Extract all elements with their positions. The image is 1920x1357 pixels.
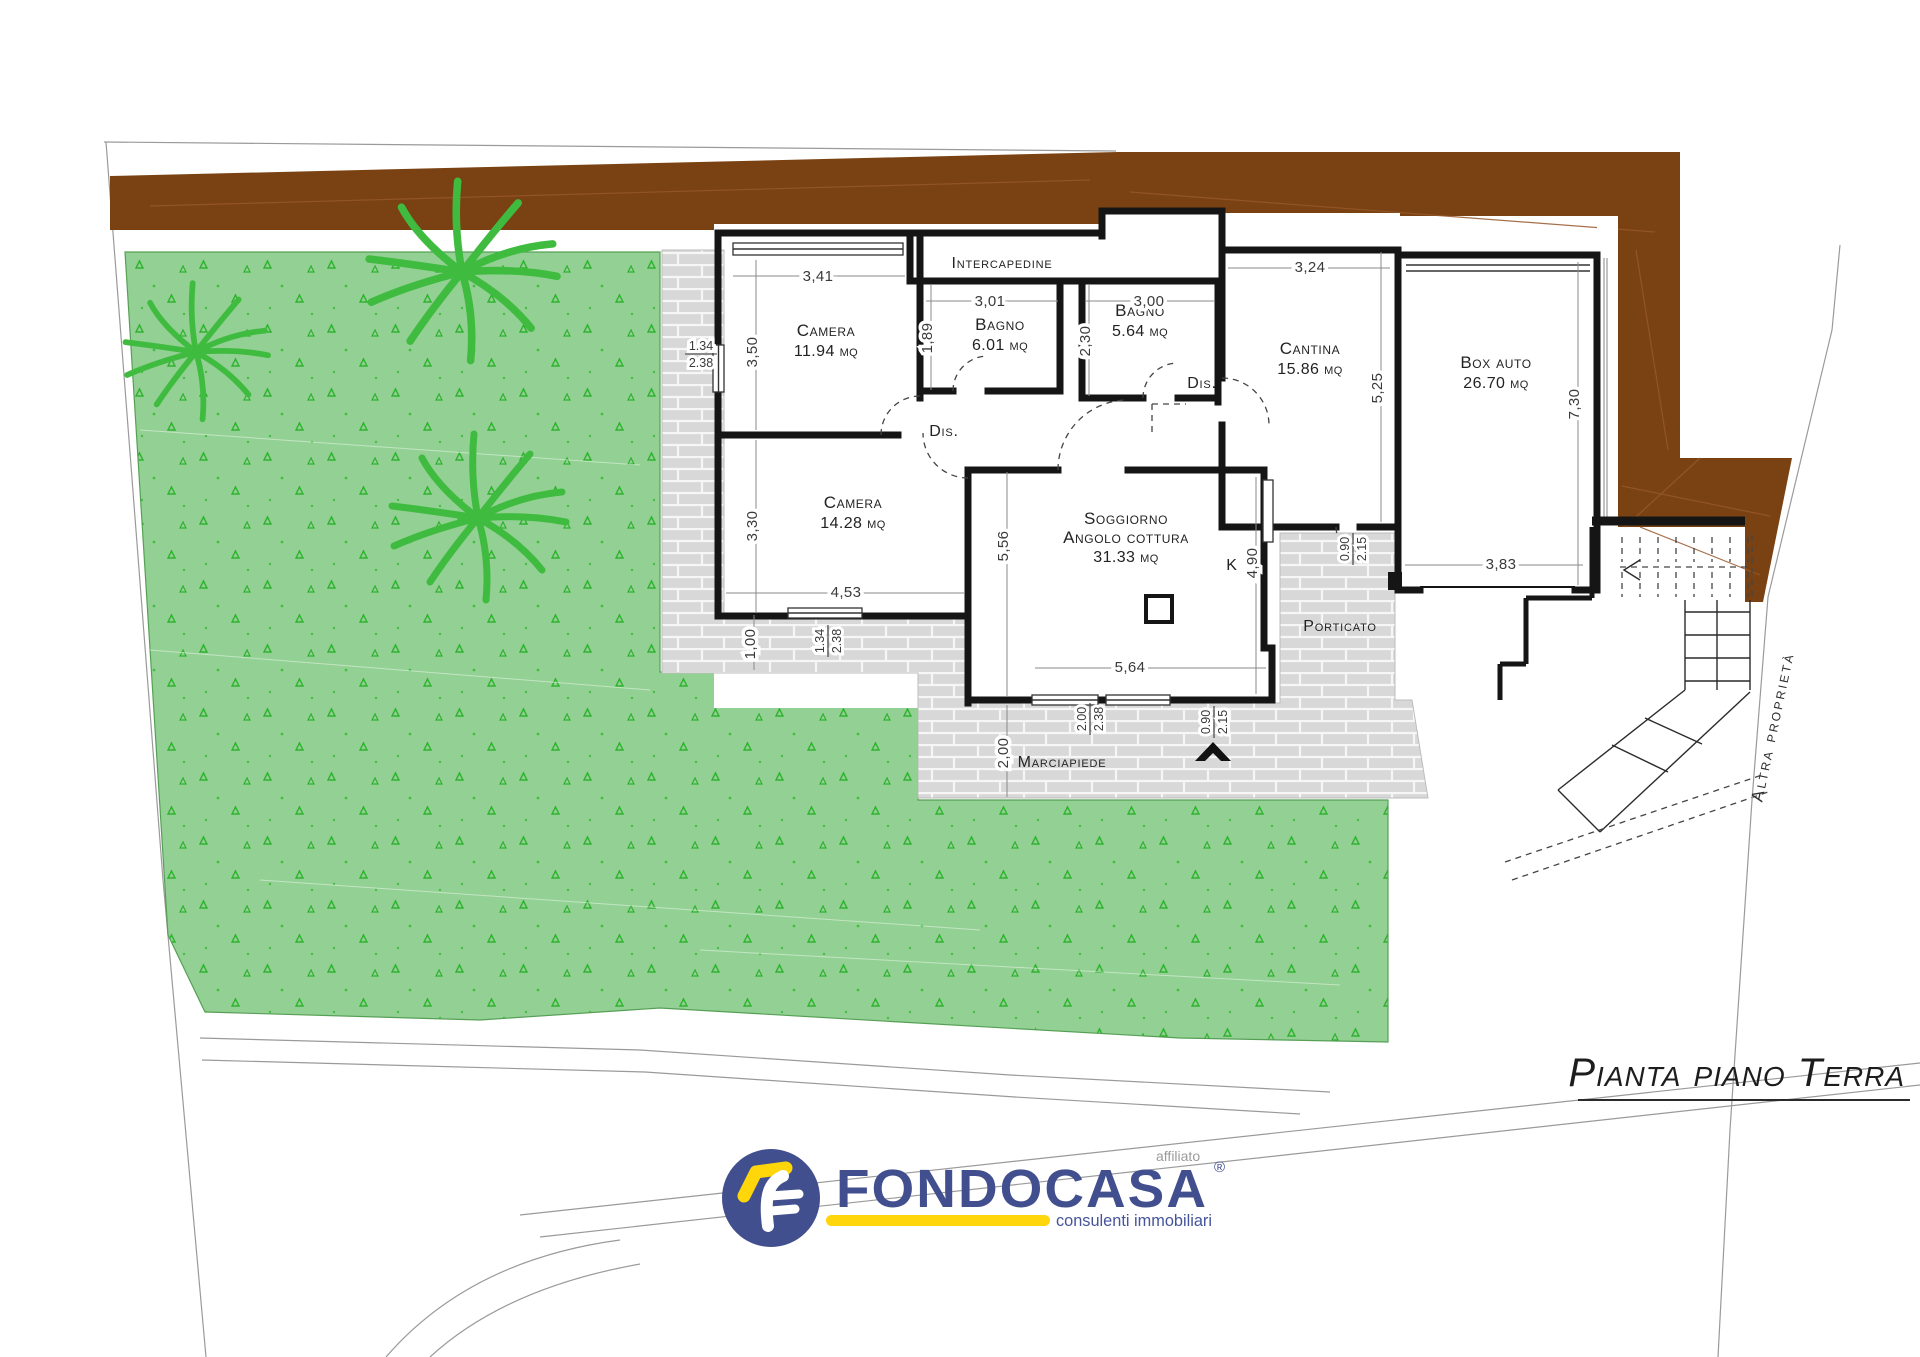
opening-width: 1.34 bbox=[689, 339, 713, 353]
room-area: 5.64 mq bbox=[1112, 323, 1168, 340]
room-name-line2: Angolo cottura bbox=[1063, 528, 1189, 547]
room-name: Camera bbox=[797, 321, 856, 340]
dim-1-89: 1,89 bbox=[919, 323, 936, 354]
room-area: 11.94 mq bbox=[794, 343, 858, 360]
road-curve bbox=[386, 1240, 640, 1357]
logo-tagline: consulenti immobiliari bbox=[1056, 1211, 1212, 1230]
logo-brand-text: FONDOCASA bbox=[836, 1159, 1208, 1219]
dim-1-00: 1,00 bbox=[742, 629, 759, 660]
dim-3-30: 3,30 bbox=[744, 511, 761, 542]
floor-slab-garage bbox=[1393, 250, 1603, 595]
label-marciapiede: Marciapiede bbox=[1018, 754, 1107, 771]
dim-4-53: 4,53 bbox=[831, 584, 862, 601]
dim-4-90: 4,90 bbox=[1244, 548, 1261, 579]
room-name: Box auto bbox=[1460, 353, 1531, 372]
room-area: 6.01 mq bbox=[972, 337, 1028, 354]
opening-dim-window-camera2: 1.34 2.38 bbox=[813, 625, 844, 657]
opening-height: 2.15 bbox=[1216, 710, 1230, 734]
kitchen-block bbox=[1146, 596, 1172, 622]
room-area: 31.33 mq bbox=[1093, 549, 1158, 566]
room-name: Cantina bbox=[1280, 339, 1340, 358]
dim-5-64: 5,64 bbox=[1115, 659, 1146, 676]
opening-width: 0.90 bbox=[1199, 710, 1213, 734]
opening-height: 2.38 bbox=[689, 356, 713, 370]
stairs-arrow-icon bbox=[1624, 560, 1640, 580]
floor-plan-drawing: Intercapedine Camera 11.94 mq Bagno 6.01… bbox=[0, 0, 1920, 1357]
logo-yellow-bar bbox=[826, 1215, 1050, 1226]
room-area: 14.28 mq bbox=[820, 515, 885, 532]
retaining-strip-top-line bbox=[104, 142, 1116, 151]
dim-5-25: 5,25 bbox=[1369, 373, 1386, 404]
room-name: Bagno bbox=[975, 315, 1025, 334]
label-altra-proprieta: Altra proprietà bbox=[1747, 650, 1797, 803]
opening-width: 0.90 bbox=[1338, 537, 1352, 561]
stairs-treads bbox=[1685, 600, 1750, 690]
opening-width: 2.00 bbox=[1075, 707, 1089, 731]
opening-dim-main-door: 0.90 2.15 bbox=[1199, 706, 1230, 738]
garage-apron bbox=[1400, 588, 1590, 703]
opening-dim-window-soggiorno: 2.00 2.38 bbox=[1075, 703, 1106, 735]
fondocasa-logo: FONDOCASA affiliato ® consulenti immobil… bbox=[722, 1148, 1225, 1247]
opening-height: 2.15 bbox=[1355, 537, 1369, 561]
opening-height: 2.38 bbox=[830, 629, 844, 653]
room-area: 15.86 mq bbox=[1277, 361, 1342, 378]
room-name: Soggiorno bbox=[1084, 509, 1168, 528]
dashed-path-lines bbox=[1505, 775, 1768, 880]
dim-3-24: 3,24 bbox=[1295, 259, 1326, 276]
logo-affiliato-text: affiliato bbox=[1156, 1148, 1200, 1164]
dim-3-50: 3,50 bbox=[744, 337, 761, 368]
dim-3-83: 3,83 bbox=[1486, 556, 1517, 573]
opening-dim-window-west: 1.34 2.38 bbox=[685, 339, 717, 370]
opening-dim-cantina-door: 0.90 2.15 bbox=[1338, 533, 1369, 565]
floor-plan-page: Intercapedine Camera 11.94 mq Bagno 6.01… bbox=[0, 0, 1920, 1357]
stairs-fan bbox=[1558, 690, 1750, 832]
label-intercapedine: Intercapedine bbox=[951, 255, 1052, 272]
room-area: 26.70 mq bbox=[1463, 375, 1528, 392]
window-kitchen-east bbox=[1263, 480, 1273, 542]
dim-7-30: 7,30 bbox=[1566, 389, 1583, 420]
dim-3-41: 3,41 bbox=[803, 268, 834, 285]
dim-3-01: 3,01 bbox=[975, 293, 1006, 310]
stairs-dashed bbox=[1620, 535, 1752, 600]
room-name: Camera bbox=[824, 493, 883, 512]
dim-2-00: 2,00 bbox=[995, 738, 1012, 769]
dim-3-00: 3,00 bbox=[1134, 293, 1165, 310]
porticato-pier bbox=[1388, 572, 1402, 590]
label-dis-1: Dis. bbox=[929, 423, 959, 440]
property-line bbox=[1718, 245, 1840, 1357]
label-kitchen-k: K bbox=[1226, 557, 1237, 574]
drawing-title: Pianta piano Terra bbox=[1568, 1051, 1910, 1100]
path-line-2 bbox=[202, 1060, 1300, 1114]
dim-2-30: 2,30 bbox=[1077, 326, 1094, 357]
opening-height: 2.38 bbox=[1092, 707, 1106, 731]
label-porticato: Porticato bbox=[1303, 618, 1377, 635]
opening-width: 1.34 bbox=[813, 629, 827, 653]
dim-5-56: 5,56 bbox=[995, 531, 1012, 562]
page-title: Pianta piano Terra bbox=[1568, 1051, 1905, 1095]
label-dis-2: Dis. bbox=[1187, 375, 1217, 392]
logo-registered-mark: ® bbox=[1214, 1159, 1225, 1176]
